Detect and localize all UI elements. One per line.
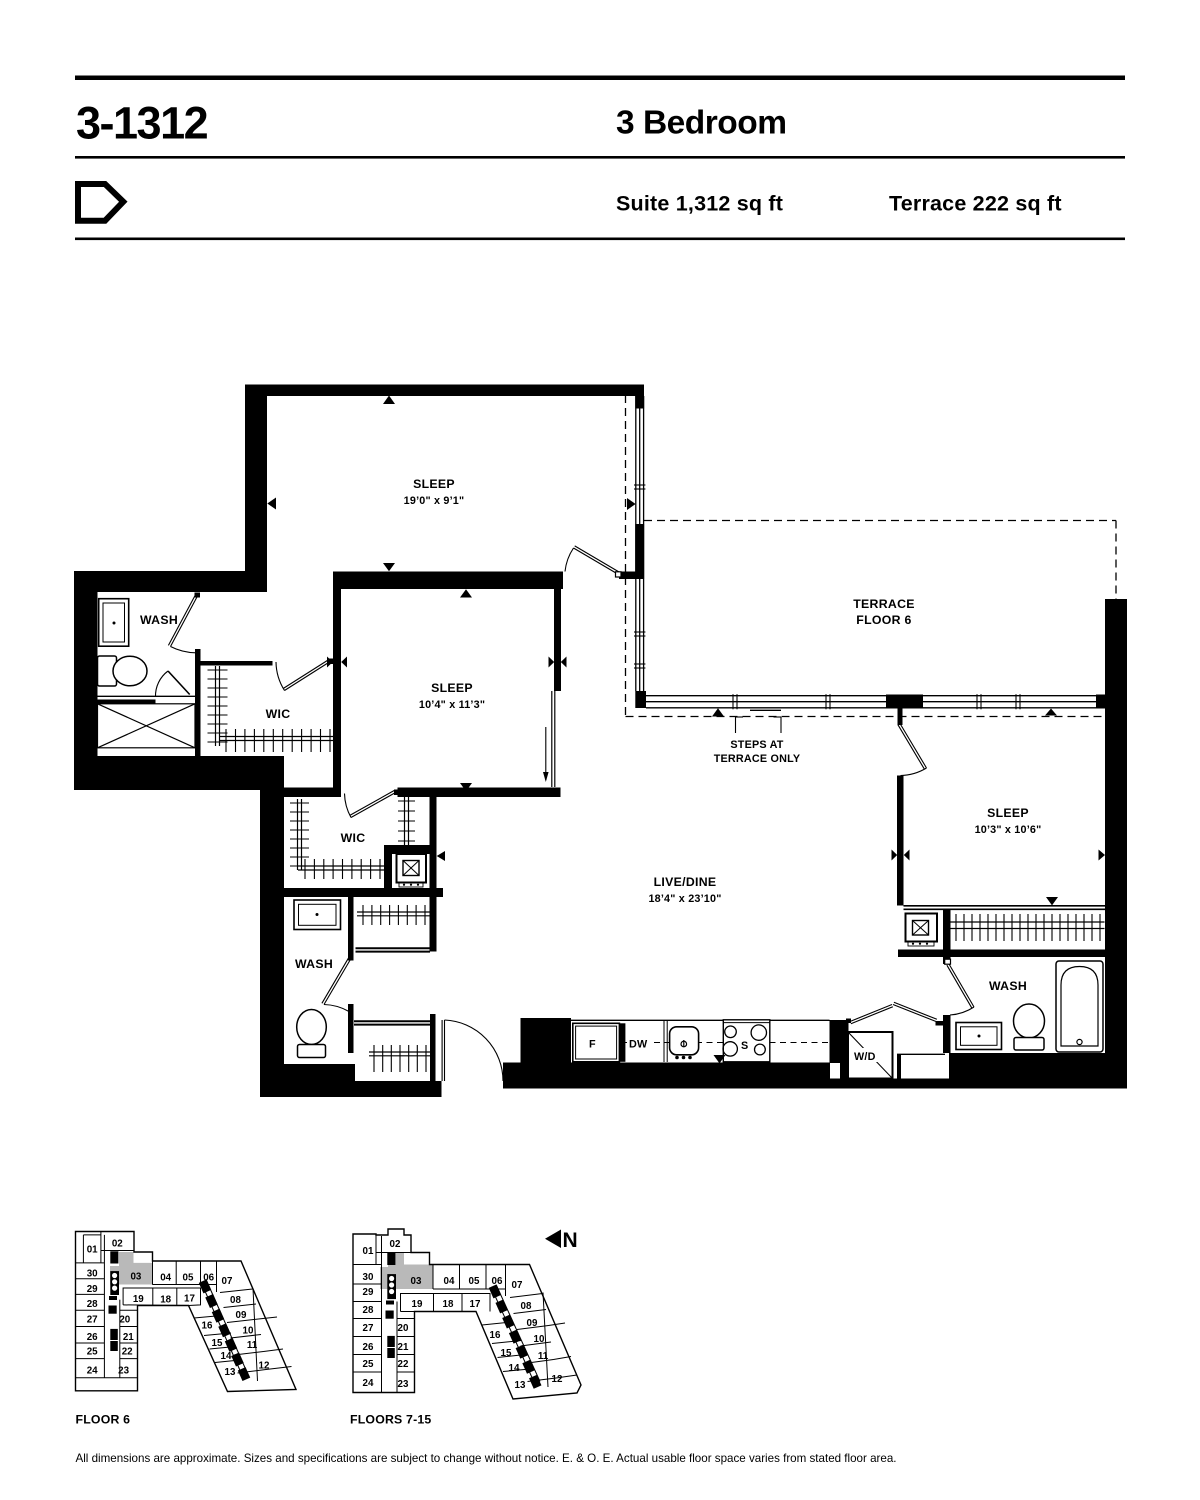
- svg-text:03: 03: [411, 1276, 422, 1287]
- svg-text:3-1312: 3-1312: [76, 98, 208, 149]
- svg-text:SLEEP: SLEEP: [987, 806, 1029, 820]
- svg-text:19: 19: [412, 1299, 423, 1310]
- svg-text:DW: DW: [629, 1039, 648, 1051]
- svg-text:11: 11: [538, 1351, 549, 1362]
- svg-text:15: 15: [212, 1338, 223, 1349]
- svg-text:W/D: W/D: [854, 1051, 876, 1063]
- svg-text:S: S: [741, 1040, 748, 1052]
- svg-text:01: 01: [87, 1244, 98, 1255]
- svg-text:07: 07: [512, 1280, 523, 1291]
- svg-text:17: 17: [184, 1294, 195, 1305]
- svg-text:26: 26: [87, 1332, 98, 1343]
- svg-text:03: 03: [130, 1272, 141, 1283]
- svg-text:18’4" x 23’10": 18’4" x 23’10": [648, 893, 721, 905]
- svg-text:24: 24: [87, 1366, 98, 1377]
- svg-text:22: 22: [398, 1359, 409, 1370]
- svg-text:23: 23: [118, 1366, 129, 1377]
- svg-text:3 Bedroom: 3 Bedroom: [616, 105, 786, 142]
- svg-text:WIC: WIC: [266, 707, 291, 721]
- svg-text:20: 20: [398, 1323, 409, 1334]
- svg-text:08: 08: [521, 1301, 532, 1312]
- svg-text:WASH: WASH: [140, 613, 178, 627]
- svg-text:Suite 1,312 sq ft: Suite 1,312 sq ft: [616, 192, 783, 216]
- svg-text:09: 09: [527, 1318, 538, 1329]
- svg-text:10: 10: [243, 1326, 254, 1337]
- svg-text:02: 02: [112, 1239, 123, 1250]
- svg-text:18: 18: [160, 1295, 171, 1306]
- svg-text:19’0" x 9’1": 19’0" x 9’1": [404, 495, 465, 507]
- svg-text:15: 15: [501, 1348, 512, 1359]
- svg-text:01: 01: [363, 1246, 374, 1257]
- svg-text:10’4" x 11’3": 10’4" x 11’3": [419, 699, 485, 711]
- svg-text:FLOORS 7-15: FLOORS 7-15: [350, 1413, 431, 1427]
- svg-text:All dimensions are approximate: All dimensions are approximate. Sizes an…: [76, 1452, 897, 1465]
- svg-text:18: 18: [443, 1299, 454, 1310]
- svg-text:30: 30: [87, 1269, 98, 1280]
- svg-text:WASH: WASH: [989, 979, 1027, 993]
- svg-text:23: 23: [398, 1379, 409, 1390]
- svg-text:WIC: WIC: [341, 831, 366, 845]
- svg-text:06: 06: [492, 1276, 503, 1287]
- svg-text:28: 28: [363, 1305, 374, 1316]
- svg-text:28: 28: [87, 1299, 98, 1310]
- svg-text:19: 19: [133, 1294, 144, 1305]
- svg-text:22: 22: [122, 1346, 133, 1357]
- svg-text:27: 27: [363, 1323, 374, 1334]
- svg-text:05: 05: [469, 1276, 480, 1287]
- svg-text:08: 08: [230, 1295, 241, 1306]
- svg-text:SLEEP: SLEEP: [431, 681, 473, 695]
- svg-text:04: 04: [160, 1272, 171, 1283]
- svg-text:16: 16: [202, 1321, 213, 1332]
- svg-text:02: 02: [390, 1239, 401, 1250]
- svg-text:STEPS AT: STEPS AT: [730, 739, 783, 751]
- svg-text:17: 17: [470, 1299, 481, 1310]
- svg-text:LIVE/DINE: LIVE/DINE: [654, 875, 717, 889]
- svg-text:06: 06: [203, 1272, 214, 1283]
- svg-text:09: 09: [236, 1310, 247, 1321]
- svg-text:11: 11: [247, 1340, 258, 1351]
- svg-text:21: 21: [123, 1332, 134, 1343]
- svg-text:FLOOR 6: FLOOR 6: [76, 1413, 131, 1427]
- svg-text:26: 26: [363, 1342, 374, 1353]
- svg-text:FLOOR 6: FLOOR 6: [856, 613, 911, 627]
- svg-text:29: 29: [363, 1287, 374, 1298]
- svg-text:30: 30: [363, 1272, 374, 1283]
- svg-text:25: 25: [363, 1359, 374, 1370]
- svg-text:16: 16: [490, 1330, 501, 1341]
- svg-text:N: N: [563, 1229, 578, 1252]
- svg-text:F: F: [589, 1039, 596, 1051]
- svg-text:20: 20: [119, 1314, 130, 1325]
- svg-text:12: 12: [259, 1361, 270, 1372]
- svg-text:07: 07: [222, 1276, 233, 1287]
- svg-text:24: 24: [363, 1378, 374, 1389]
- svg-text:10: 10: [534, 1334, 545, 1345]
- svg-text:04: 04: [444, 1276, 455, 1287]
- svg-text:12: 12: [552, 1374, 563, 1385]
- svg-text:14: 14: [221, 1351, 232, 1362]
- svg-text:14: 14: [509, 1363, 520, 1374]
- svg-text:21: 21: [398, 1342, 409, 1353]
- svg-text:WASH: WASH: [295, 957, 333, 971]
- svg-text:10’3" x 10’6": 10’3" x 10’6": [975, 824, 1042, 836]
- svg-text:25: 25: [87, 1346, 98, 1357]
- svg-text:13: 13: [225, 1367, 236, 1378]
- svg-text:TERRACE: TERRACE: [853, 597, 915, 611]
- svg-text:27: 27: [87, 1314, 98, 1325]
- svg-text:29: 29: [87, 1284, 98, 1295]
- svg-text:TERRACE ONLY: TERRACE ONLY: [714, 753, 801, 765]
- svg-text:13: 13: [515, 1380, 526, 1391]
- svg-text:Terrace 222 sq ft: Terrace 222 sq ft: [889, 192, 1062, 216]
- svg-text:SLEEP: SLEEP: [413, 477, 455, 491]
- svg-text:05: 05: [183, 1272, 194, 1283]
